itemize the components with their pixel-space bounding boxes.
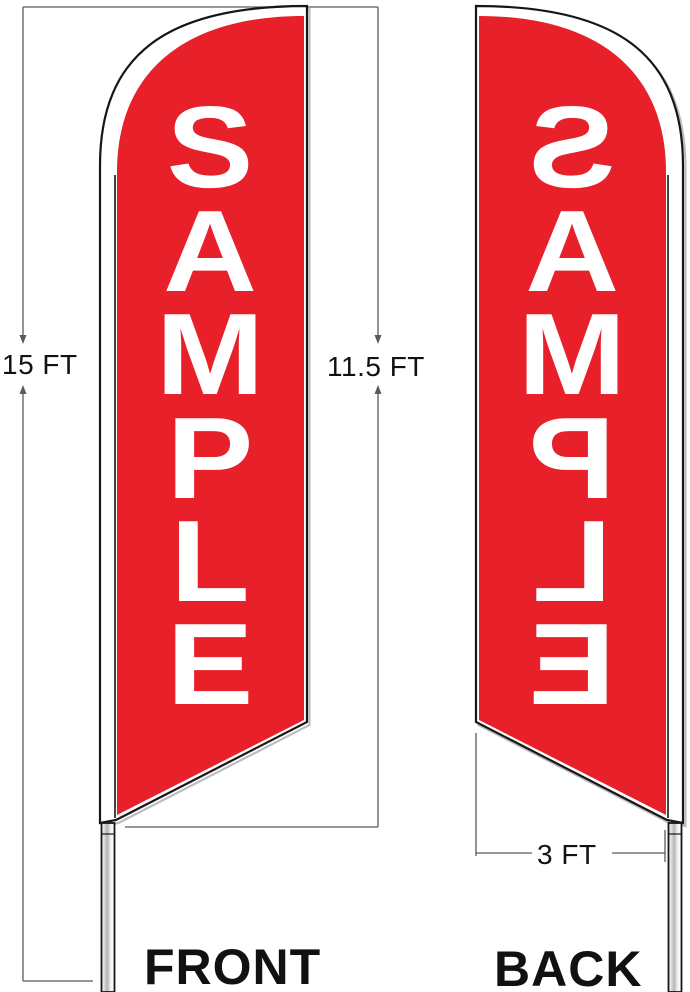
back-flag-text: S A M P L E [518, 83, 626, 729]
front-flag: S A M P L E [100, 6, 310, 992]
dim-15ft-arrow-upper [20, 335, 27, 344]
back-letter-6: E [529, 600, 616, 729]
front-letter-6: E [167, 600, 254, 729]
dim-15ft-arrow-lower [20, 385, 27, 394]
dim-115ft-arrow-lower [375, 385, 382, 394]
back-flag-pole [669, 823, 682, 992]
front-flag-pole [102, 823, 115, 992]
dimension-flag-height-label: 11.5 FT [327, 353, 425, 381]
dim-115ft-arrow-upper [375, 335, 382, 344]
front-view-label: FRONT [144, 942, 321, 992]
front-flag-text: S A M P L E [156, 83, 264, 729]
back-view-label: BACK [494, 944, 642, 992]
dimension-flag-width-label: 3 FT [537, 841, 597, 869]
dimension-pole-height-label: 15 FT [2, 351, 78, 379]
flag-dimension-diagram: S A M P L E S A M P L E [0, 0, 690, 992]
